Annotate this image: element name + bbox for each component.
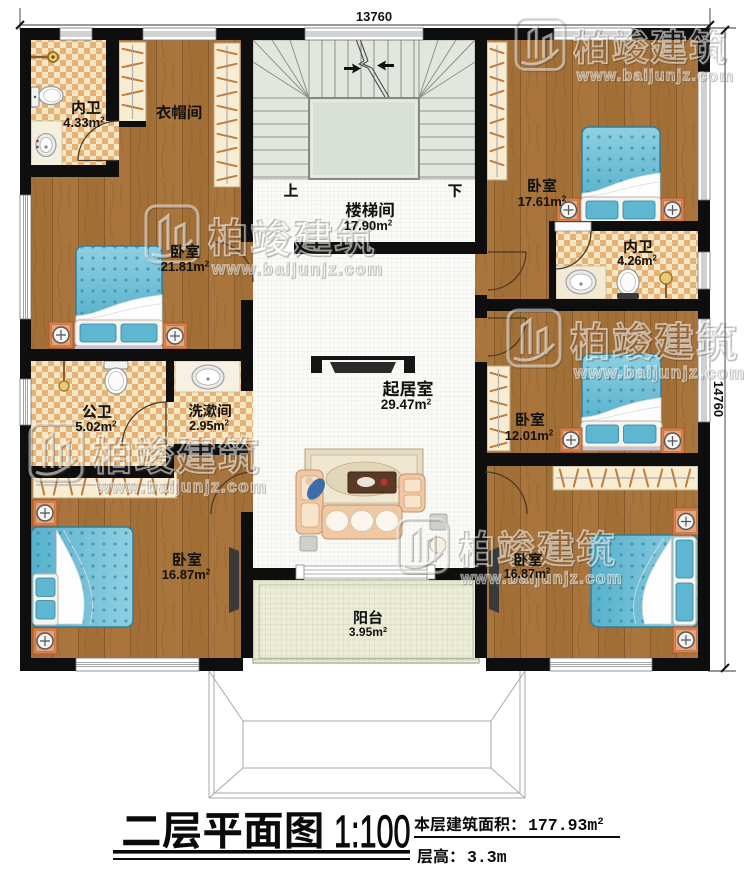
svg-text:16.87m2: 16.87m2 (162, 567, 211, 582)
svg-text:177.93m2: 177.93m2 (528, 816, 604, 835)
svg-text:1:100: 1:100 (334, 807, 411, 857)
svg-text:www.baijunjz.com: www.baijunjz.com (576, 68, 734, 85)
svg-text:www.baijunjz.com: www.baijunjz.com (95, 477, 267, 496)
svg-text:3.3m: 3.3m (467, 848, 507, 867)
svg-text:2.95m2: 2.95m2 (189, 419, 229, 433)
svg-text:4.26m2: 4.26m2 (617, 254, 657, 268)
svg-text:17.61m2: 17.61m2 (518, 194, 567, 209)
svg-text:21.81m2: 21.81m2 (161, 259, 210, 274)
svg-text:14760: 14760 (711, 381, 726, 417)
svg-text:5.02m2: 5.02m2 (75, 419, 117, 434)
svg-text:www.baijunjz.com: www.baijunjz.com (211, 259, 383, 278)
svg-text:4.33m2: 4.33m2 (63, 115, 105, 130)
svg-text:17.90m2: 17.90m2 (344, 218, 393, 233)
svg-text:12.01m2: 12.01m2 (505, 428, 554, 443)
svg-text:3.95m2: 3.95m2 (349, 625, 387, 639)
svg-text:www.baijunjz.com: www.baijunjz.com (573, 363, 745, 382)
svg-text:13760: 13760 (356, 9, 392, 24)
svg-text:29.47m2: 29.47m2 (381, 396, 432, 412)
svg-text:16.87m2: 16.87m2 (504, 567, 551, 581)
